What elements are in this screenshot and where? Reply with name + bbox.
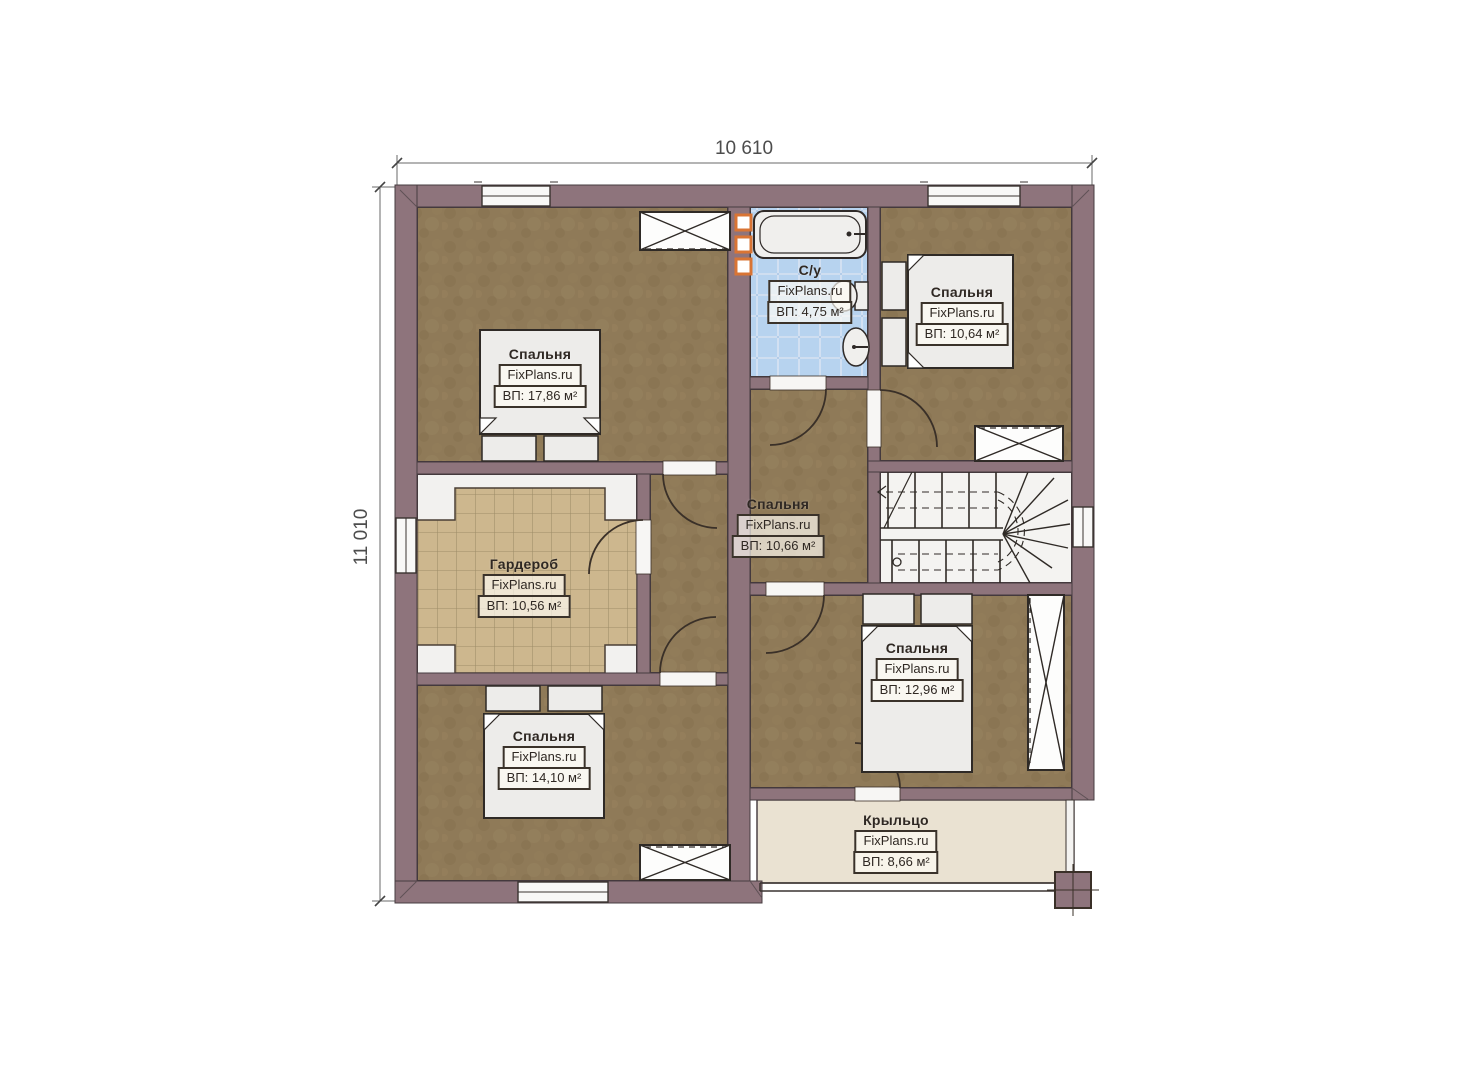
vent-icon — [736, 237, 751, 252]
nightstand — [544, 436, 598, 461]
door-gap-wardrobe — [636, 520, 651, 574]
wall-wardrobe-right — [637, 474, 650, 685]
room-label-porch: Крыльцо FixPlans.ru ВП: 8,66 м² — [853, 812, 938, 874]
area-box: ВП: 12,96 м² — [871, 679, 964, 702]
wall-right — [1072, 185, 1094, 800]
door-gap-bathroom — [770, 376, 826, 390]
room-name: Спальня — [747, 496, 810, 512]
brand-box: FixPlans.ru — [482, 574, 565, 597]
room-label-bedroom-top-left: Спальня FixPlans.ru ВП: 17,86 м² — [494, 346, 587, 408]
closet-bedroom-tr — [975, 426, 1063, 461]
closet-bedroom-tl — [640, 212, 730, 250]
window-top-right — [920, 182, 1028, 206]
sink-icon — [843, 328, 869, 366]
door-gap-bedroom-tl — [663, 461, 716, 475]
floor-plan-page: 10 610 11 010 Спальня FixPlans.ru ВП: 17… — [0, 0, 1473, 1080]
room-label-bedroom-top-right: Спальня FixPlans.ru ВП: 10,64 м² — [916, 284, 1009, 346]
door-gap-bedroom-bl — [660, 672, 716, 686]
area-box: ВП: 4,75 м² — [767, 301, 852, 324]
nightstand — [548, 686, 602, 711]
floor-hall-strip — [650, 474, 728, 673]
nightstand — [921, 594, 972, 624]
room-label-bedroom-center: Спальня FixPlans.ru ВП: 10,66 м² — [732, 496, 825, 558]
nightstand — [882, 318, 906, 366]
wall-above-stairs — [868, 461, 1072, 472]
stair-start-dot — [893, 558, 901, 566]
area-box: ВП: 10,64 м² — [916, 323, 1009, 346]
room-name: С/у — [799, 262, 822, 278]
area-box: ВП: 10,66 м² — [732, 535, 825, 558]
room-name: Спальня — [509, 346, 572, 362]
room-label-wardrobe: Гардероб FixPlans.ru ВП: 10,56 м² — [478, 556, 571, 618]
room-name: Спальня — [931, 284, 994, 300]
vent-shaft-icons — [736, 215, 751, 274]
dimension-height-label: 11 010 — [351, 509, 373, 566]
door-gap-bedroom-mr — [766, 582, 824, 596]
window-right-stairs — [1073, 507, 1093, 547]
area-box: ВП: 10,56 м² — [478, 595, 571, 618]
window-top-left — [474, 182, 558, 206]
nightstand — [482, 436, 536, 461]
brand-box: FixPlans.ru — [920, 302, 1003, 325]
wall-above-porch — [750, 788, 1072, 800]
room-label-bathroom: С/у FixPlans.ru ВП: 4,75 м² — [767, 262, 852, 324]
brand-box: FixPlans.ru — [768, 280, 851, 303]
window-left — [396, 518, 416, 573]
nightstand — [486, 686, 540, 711]
room-name: Спальня — [513, 728, 576, 744]
vent-icon — [736, 259, 751, 274]
dimension-width-label: 10 610 — [715, 138, 773, 160]
brand-box: FixPlans.ru — [498, 364, 581, 387]
brand-box: FixPlans.ru — [736, 514, 819, 537]
closet-bedroom-bl — [640, 845, 730, 880]
brand-box: FixPlans.ru — [854, 830, 937, 853]
area-box: ВП: 17,86 м² — [494, 385, 587, 408]
window-bottom — [518, 882, 608, 902]
room-name: Спальня — [886, 640, 949, 656]
door-gap-porch — [855, 787, 900, 801]
brand-box: FixPlans.ru — [502, 746, 585, 769]
vent-icon — [736, 215, 751, 230]
room-name: Крыльцо — [863, 812, 929, 828]
area-box: ВП: 14,10 м² — [498, 767, 591, 790]
door-gap-bedroom-tr — [867, 390, 881, 447]
area-box: ВП: 8,66 м² — [853, 851, 938, 874]
brand-box: FixPlans.ru — [875, 658, 958, 681]
room-label-bedroom-bottom-left: Спальня FixPlans.ru ВП: 14,10 м² — [498, 728, 591, 790]
room-label-bedroom-mid-right: Спальня FixPlans.ru ВП: 12,96 м² — [871, 640, 964, 702]
nightstand — [882, 262, 906, 310]
nightstand — [863, 594, 914, 624]
closet-bedroom-mr — [1028, 595, 1064, 770]
room-name: Гардероб — [490, 556, 559, 572]
bathtub-icon — [754, 211, 866, 258]
